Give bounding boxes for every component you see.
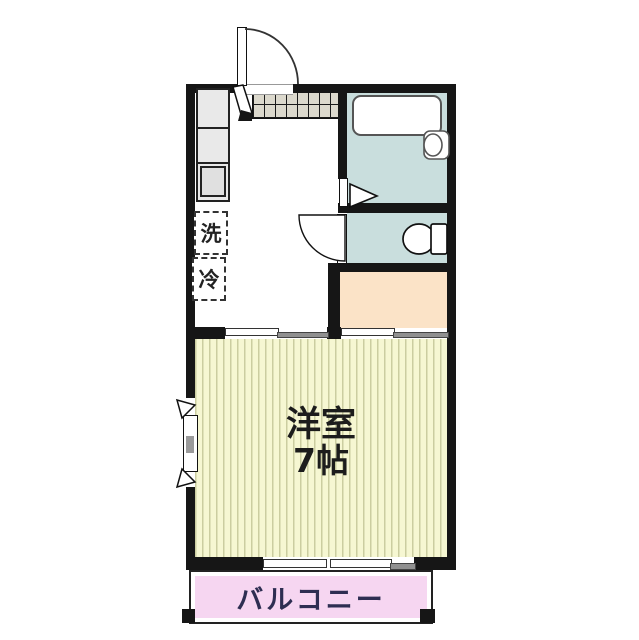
entrance-door [237,27,247,86]
fridge-label: 冷 [199,264,220,294]
balcony-sliding-door-panel [390,563,416,570]
wall-room-top-b [327,327,341,339]
entrance-step-end [238,110,252,121]
balcony-label: バルコニー [236,578,385,617]
toilet-door [337,214,347,264]
bathroom-folding-door [339,178,348,207]
wall-closet-left [328,263,340,335]
balcony-pier-left [182,609,195,623]
balcony: バルコニー [189,570,433,624]
toilet-floor [347,213,447,263]
sliding-door-panel [277,332,329,338]
washing-machine-space: 洗 [194,211,228,255]
washer-label: 洗 [201,218,222,248]
wall-right [447,84,456,570]
wall-top-right [293,84,456,93]
bathtub [352,95,442,136]
wall-bath-left [338,84,347,179]
main-room-label: 洋室 7帖 [195,400,447,485]
counter-divider [198,162,228,164]
wall-room-bottom-a [186,557,263,570]
wall-bath-toilet-divider [338,203,456,213]
balcony-sliding-door-panel [263,559,327,568]
counter-divider [198,127,228,129]
refrigerator-space: 冷 [192,257,226,301]
room-name: 洋室 [286,407,356,444]
entrance-door-arc [245,29,298,84]
window-sash [186,436,194,453]
balcony-sliding-door-panel [330,559,392,568]
kitchen-counter [196,88,230,202]
room-size: 7帖 [293,444,349,479]
wall-room-bottom-b [414,557,456,570]
sliding-door-panel [393,332,449,338]
entrance-threshold [243,84,293,95]
balcony-pier-right [420,609,435,623]
floor-plan: 洗 冷 洋室 7帖 バルコニー [0,0,639,640]
sliding-door-panel [225,328,279,336]
sliding-door-panel [341,328,395,336]
wall-toilet-bottom [328,263,456,272]
closet [340,272,447,328]
wall-room-top-a [195,327,225,339]
kitchen-sink [200,166,226,197]
